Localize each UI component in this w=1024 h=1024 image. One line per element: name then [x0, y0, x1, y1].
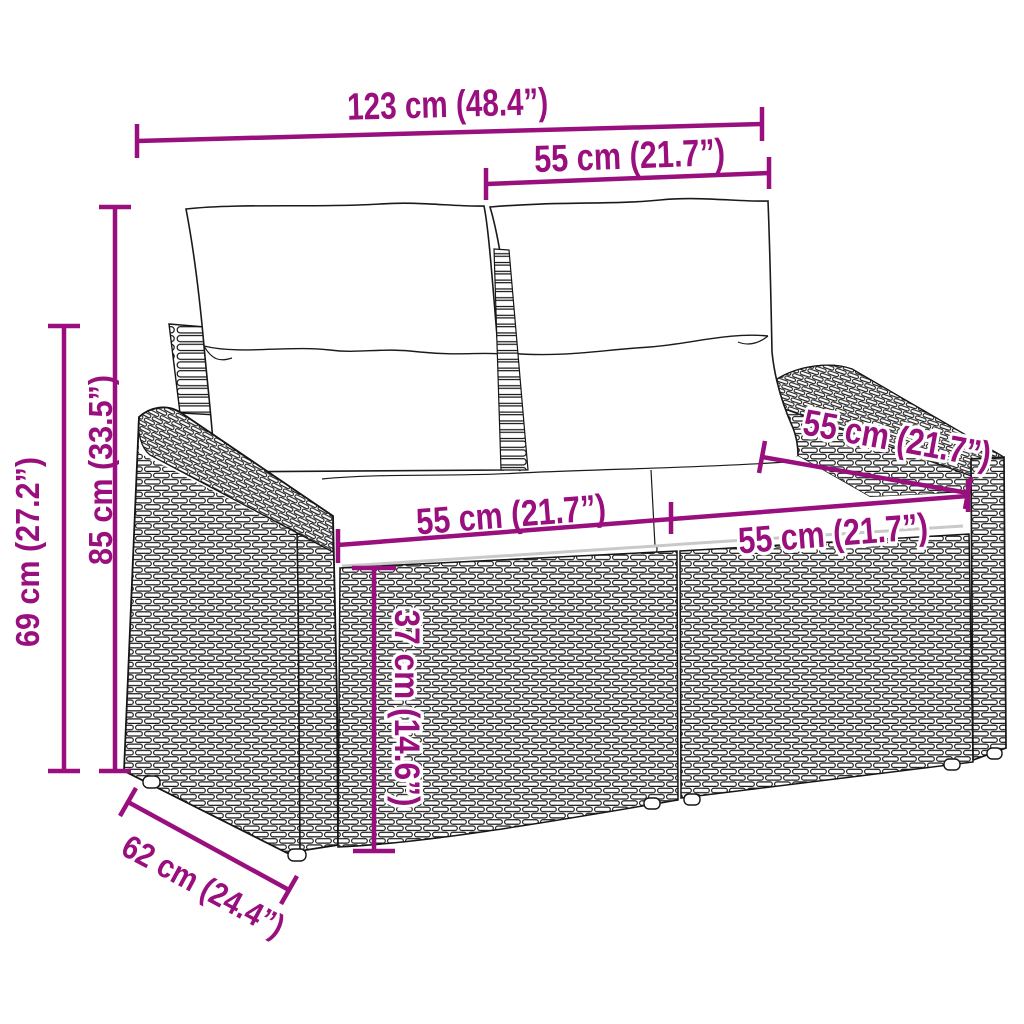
svg-text:123 cm (48.4”): 123 cm (48.4”) [347, 81, 549, 129]
svg-text:37 cm (14.6”): 37 cm (14.6”) [387, 610, 426, 807]
svg-text:69 cm (27.2”): 69 cm (27.2”) [9, 457, 46, 647]
